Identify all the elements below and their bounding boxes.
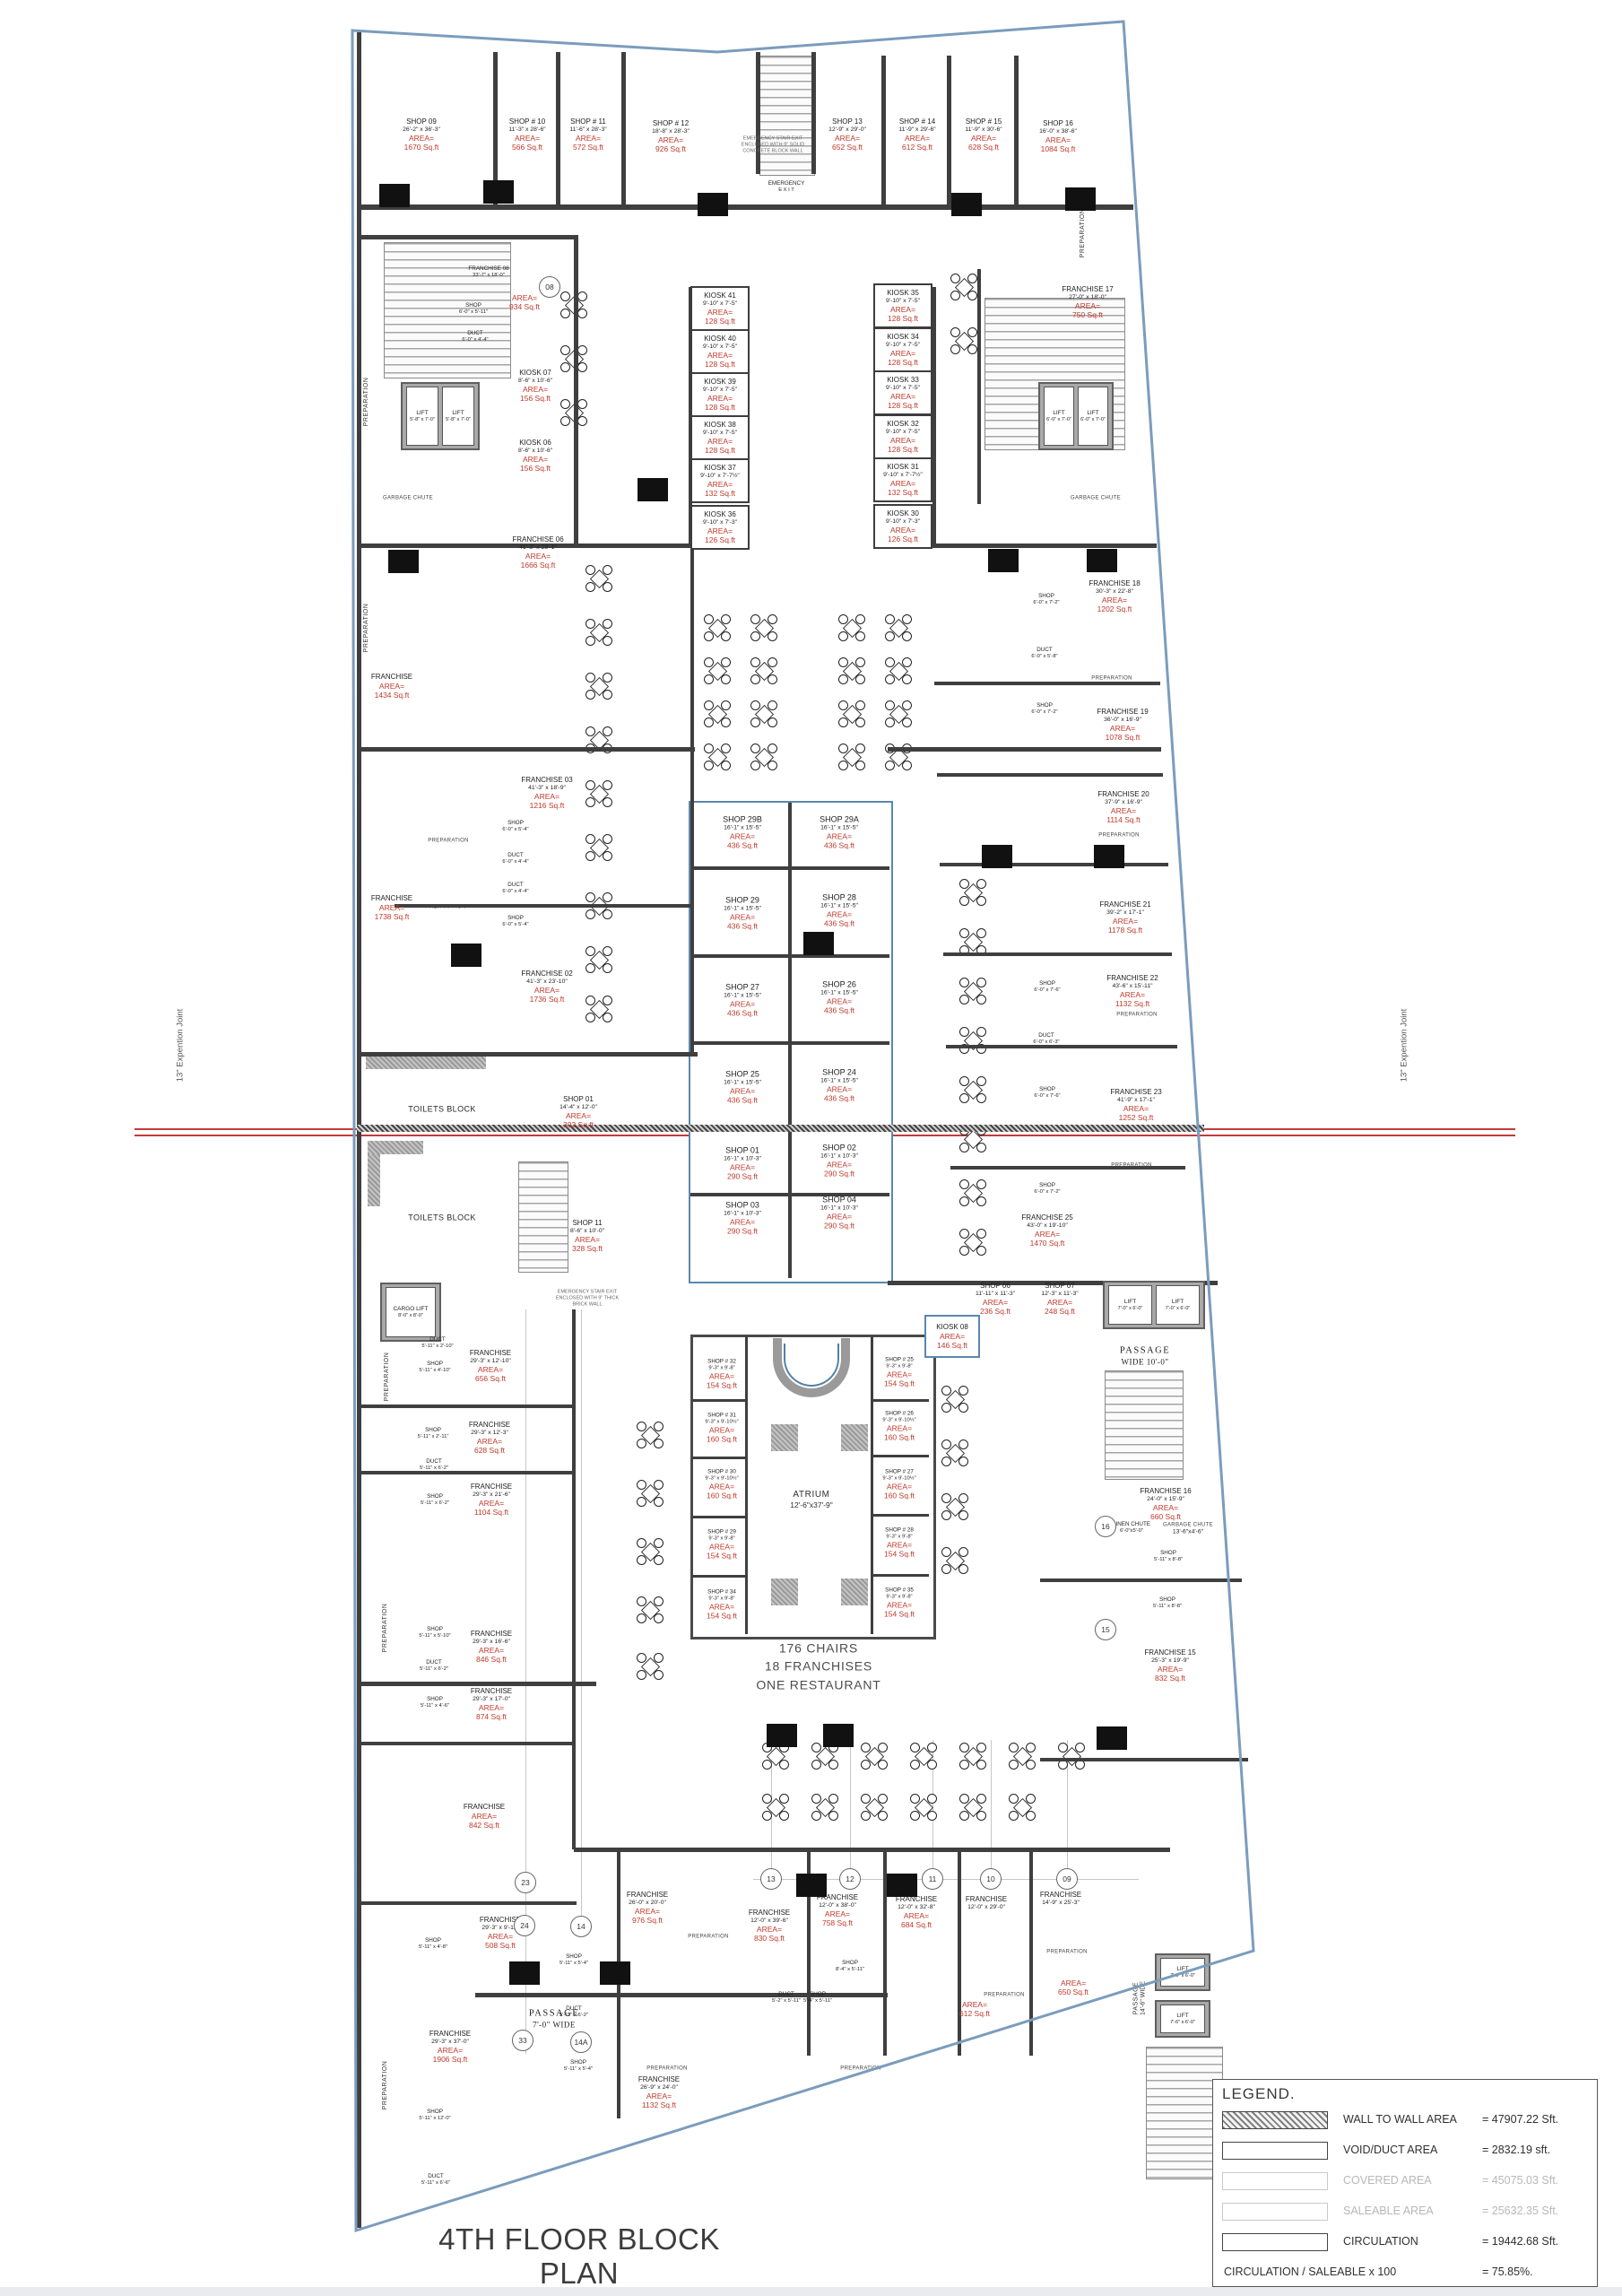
room-name: SHOP 11	[572, 1219, 602, 1228]
room-name: PREPARATION	[363, 378, 370, 427]
table-cluster-icon	[637, 1653, 664, 1680]
lift-cell: LIFT5'-8" x 7'-0"	[442, 387, 474, 446]
room-name: SHOP 28	[822, 892, 856, 902]
room-area: AREA=	[827, 1160, 852, 1169]
room-name: SHOP # 31	[707, 1413, 736, 1420]
room-dims: 16'-1" x 15'-5"	[724, 1079, 761, 1086]
room-area: 436 Sq.ft	[727, 840, 758, 849]
room-label: SHOP # 1411'-9" x 29'-6"AREA=612 Sq.ft	[898, 117, 935, 152]
room-dims: 5'-11" x 4'-6"	[421, 1702, 449, 1709]
room-name: DUCT	[426, 1659, 442, 1666]
room-area: AREA=	[479, 1703, 504, 1712]
room-label: SHOP # 279'-3" x 9'-10½"AREA=160 Sq.ft	[882, 1469, 915, 1500]
room-name: SHOP	[427, 2109, 443, 2116]
room-area: 1906 Sq.ft	[433, 2055, 468, 2064]
room-dims: 9'-3" x 9'-8"	[708, 1535, 734, 1542]
room-dims: 9'-3" x 9'-8"	[886, 1363, 912, 1370]
room-area: AREA=	[409, 134, 434, 143]
room-area: AREA=	[835, 134, 860, 143]
table-cluster-icon	[637, 1422, 664, 1448]
room-area: AREA=	[1045, 135, 1071, 144]
wall	[621, 52, 626, 206]
room-name: DUCT	[566, 2005, 582, 2013]
room-area: 934 Sq.ft	[509, 302, 540, 311]
room-label: DUCT5'-11" x 6'-2"	[559, 2005, 588, 2019]
room-label: SHOP5'-4" x 5'-11"	[803, 1991, 832, 2005]
room-label: DUCT6'-0" x 4'-4"	[502, 882, 528, 895]
room-label: DUCT5'-11" x 6'-2"	[420, 1659, 448, 1673]
legend-label: CIRCULATION / SALEABLE x 100	[1224, 2266, 1396, 2278]
wall	[572, 1309, 576, 1849]
room-name: FRANCHISE	[638, 2075, 680, 2084]
room-area: 128 Sq.ft	[705, 360, 735, 369]
room-area: AREA=	[576, 134, 601, 143]
room-name: SHOP	[425, 1427, 441, 1434]
room-area: AREA=	[887, 1370, 912, 1378]
lift-core: LIFT7'-6" x 6'-0"	[1155, 2000, 1210, 2038]
room-label: FRANCHISE29'-3" x 17'-0"AREA=874 Sq.ft	[471, 1687, 512, 1721]
room-label: SHOP6'-0" x 7'-2"	[1031, 702, 1057, 716]
room-dims: 5'-11" x 6'-2"	[421, 1500, 449, 1506]
room-label: FRANCHISE29'-3" x 21'-6"AREA=1104 Sq.ft	[471, 1483, 512, 1517]
room-label: FRANCHISE 2139'-2" x 17'-1"AREA=1178 Sq.…	[1099, 900, 1150, 935]
room-label: SHOP6'-0" x 5'-4"	[502, 915, 528, 928]
room-dims: 5'-11" x 6'-6"	[421, 2179, 450, 2186]
room-area: 750 Sq.ft	[1072, 310, 1103, 319]
room-area: 926 Sq.ft	[655, 144, 686, 153]
room-dims: 27'-0" x 18'-0"	[1069, 294, 1106, 301]
room-area: AREA=	[707, 437, 733, 446]
lift-core: LIFT6'-0" x 7'-0"LIFT6'-0" x 7'-0"	[1038, 382, 1114, 450]
room-name: FRANCHISE 06	[512, 535, 563, 544]
room-dims: 5'-11" x 5'-4"	[559, 1960, 588, 1966]
room-dims: 9'-3" x 9'-10½"	[882, 1417, 915, 1423]
room-name: KIOSK 38	[704, 421, 736, 430]
table-cluster-icon	[585, 834, 612, 861]
room-label: SHOP5'-11" x 2'-11"	[418, 1427, 449, 1440]
room-area: 132 Sq.ft	[888, 488, 918, 497]
room-area: 128 Sq.ft	[705, 403, 735, 412]
table-cluster-icon	[959, 928, 986, 955]
room-area: 652 Sq.ft	[832, 143, 863, 152]
wall	[357, 1471, 574, 1474]
room-area: 1216 Sq.ft	[530, 801, 565, 810]
room-dims: 41'-9" x 17'-1"	[1117, 1097, 1155, 1104]
floor-plan: 13" Expention Joint 13" Expention Joint …	[0, 0, 1622, 2296]
room-label: FRANCHISE14'-9" x 25'-3"	[1040, 1891, 1081, 1907]
room-label: DUCT6'-0" x 6'-3"	[1033, 1032, 1059, 1046]
room-name: SHOP	[842, 1960, 858, 1967]
grid-bubble: 14	[570, 1916, 592, 1937]
room-label: SHOP6'-0" x 7'-2"	[1033, 593, 1059, 606]
room-area: 874 Sq.ft	[476, 1712, 507, 1721]
room-name: GARBAGE CHUTE	[1071, 495, 1121, 501]
room-label: PREPARATION	[1091, 675, 1132, 682]
room-area: AREA=	[512, 293, 537, 302]
room-area: AREA=	[523, 385, 548, 394]
room-name: PASSAGE	[1133, 1982, 1141, 2014]
room-name: DUCT	[1038, 1032, 1054, 1039]
table-cluster-icon	[704, 744, 731, 770]
legend-row: COVERED AREA= 45075.03 Sft.	[1213, 2171, 1597, 2193]
room-label: DUCT5'-2" x 5'-11"	[772, 1991, 801, 2005]
legend-row: VOID/DUCT AREA= 2832.19 sft.	[1213, 2141, 1597, 2162]
room-name: SHOP	[1038, 593, 1054, 600]
room-dims: 14'-4" x 12'-0"	[559, 1104, 597, 1111]
room-label: DUCT5'-11" x 2'-10"	[421, 1336, 453, 1350]
room-name: KIOSK 33	[887, 376, 919, 385]
lift-cell: LIFT7'-0" x 6'-0"	[1156, 1285, 1200, 1325]
room-dims: 16'-1" x 10'-3"	[820, 1152, 858, 1160]
room-label: FRANCHISE29'-3" x 37'-0"AREA=1906 Sq.ft	[429, 2030, 471, 2064]
room-area: AREA=	[1102, 596, 1127, 604]
structural-column	[951, 193, 982, 216]
room-area: 128 Sq.ft	[888, 358, 918, 367]
room-dims: 16'-1" x 15'-5"	[820, 989, 858, 996]
lift-cell: LIFT7'-6" x 6'-0"	[1160, 1958, 1205, 1987]
room-label: KIOSK 369'-10" x 7'-3"AREA=126 Sq.ft	[690, 505, 750, 550]
room-label: PREPARATION	[1098, 832, 1139, 839]
lift-cell: LIFT7'-6" x 6'-0"	[1160, 2005, 1205, 2033]
table-cluster-icon	[959, 1743, 986, 1770]
table-cluster-icon	[941, 1493, 968, 1520]
room-name: SHOP	[1159, 1596, 1175, 1604]
table-cluster-icon	[959, 1229, 986, 1256]
room-name: SHOP 01	[563, 1095, 594, 1104]
room-dims: 6'-0" x 4'-4"	[502, 858, 528, 865]
room-name: TOILETS BLOCK	[408, 1105, 476, 1115]
room-name: DUCT	[1037, 647, 1053, 654]
table-cluster-icon	[838, 614, 865, 641]
room-label: AREA=650 Sq.ft	[1058, 1979, 1089, 1996]
page-edge-strip	[0, 2287, 1622, 2296]
room-area: AREA=	[379, 903, 404, 912]
room-label: FRANCHISE12'-0" x 32'-8"AREA=684 Sq.ft	[896, 1895, 937, 1929]
room-label: PREPARATION	[382, 2061, 389, 2110]
room-area: 1470 Sq.ft	[1030, 1239, 1065, 1248]
expansion-joint-label-right: 13" Expention Joint	[1399, 1009, 1409, 1083]
room-name: ATRIUM	[793, 1490, 829, 1500]
room-dims: 9'-10" x 7'-5"	[886, 298, 920, 305]
room-label: AREA=934 Sq.ft	[509, 293, 540, 311]
room-dims: 11'-9" x 30'-6"	[965, 126, 1002, 134]
room-area: 566 Sq.ft	[512, 143, 542, 152]
wall	[692, 1575, 746, 1578]
room-dims: 11'-9" x 29'-6"	[898, 126, 935, 134]
room-dims: 5'-2" x 5'-11"	[772, 1997, 801, 2004]
wall	[745, 1336, 748, 1634]
room-name: GARBAGE CHUTE	[1163, 1522, 1213, 1528]
room-area: AREA=	[730, 1162, 755, 1171]
room-area: 1178 Sq.ft	[1108, 926, 1142, 935]
room-area: AREA=	[890, 392, 915, 401]
hatched-fixture	[366, 1056, 486, 1069]
wall	[788, 803, 792, 1278]
room-area: 436 Sq.ft	[727, 921, 758, 930]
room-name: DUCT	[507, 852, 524, 859]
room-label: FRANCHISEAREA=1434 Sq.ft	[371, 673, 412, 700]
wall	[940, 863, 1168, 866]
room-label: DUCT6'-0" x 4'-4"	[502, 852, 528, 865]
room-dims: 6'-0" x 7'-6"	[1034, 987, 1060, 993]
room-label: PREPARATION	[384, 1352, 391, 1402]
lift-core: CARGO LIFT8'-0" x 8'-0"	[380, 1283, 441, 1342]
room-dims: 9'-3" x 9'-10½"	[705, 1475, 738, 1482]
room-area: AREA=	[827, 909, 852, 918]
grid-bubble: 09	[1056, 1868, 1078, 1890]
room-area: AREA=	[887, 1600, 912, 1609]
room-label: SHOP 0611'-11" x 11'-3"AREA=236 Sq.ft	[976, 1282, 1015, 1316]
room-area: AREA=	[534, 986, 559, 995]
table-cluster-icon	[861, 1743, 888, 1770]
room-dims: 41'-3" x 23'-10"	[526, 978, 568, 986]
room-area: AREA=	[827, 831, 852, 840]
room-area: 1434 Sq.ft	[375, 691, 410, 700]
room-area: 1252 Sq.ft	[1119, 1113, 1154, 1122]
room-area: AREA=	[635, 1907, 660, 1916]
room-name: SHOP	[427, 1493, 443, 1500]
hatched-fixture	[771, 1578, 798, 1605]
room-dims: 9'-3" x 9'-8"	[708, 1596, 734, 1602]
room-area: 154 Sq.ft	[884, 1378, 915, 1387]
room-name: SHOP 04	[822, 1195, 856, 1205]
room-area: 154 Sq.ft	[707, 1380, 737, 1389]
room-label: FRANCHISE12'-0" x 38'-0"AREA=758 Sq.ft	[817, 1893, 858, 1927]
room-name: SHOP # 10	[509, 117, 545, 126]
room-dims: 16'-1" x 15'-5"	[724, 992, 761, 999]
room-name: PASSAGE	[1120, 1345, 1170, 1357]
room-area: AREA=	[887, 1482, 912, 1491]
room-area: 684 Sq.ft	[901, 1920, 932, 1929]
room-area: 290 Sq.ft	[824, 1169, 854, 1178]
room-area: AREA=	[730, 912, 755, 921]
room-dims: 8'-6" x 10'-6"	[518, 378, 552, 385]
legend-value: = 25632.35 Sft.	[1482, 2205, 1558, 2217]
room-name: PREPARATION	[840, 2066, 880, 2072]
room-area: AREA=	[940, 1332, 965, 1341]
room-dims: 6'-0" x 4'-4"	[462, 336, 488, 343]
room-dims: 39'-2" x 17'-1"	[1106, 909, 1144, 917]
room-name: LINEN CHUTE	[1113, 1521, 1150, 1528]
room-label: SHOP 2716'-1" x 15'-5"AREA=436 Sq.ft	[724, 982, 761, 1017]
room-dims: 8'-4" x 5'-11"	[836, 1966, 864, 1972]
room-area: 1132 Sq.ft	[642, 2100, 676, 2109]
room-dims: 26'-2" x 36'-3"	[403, 126, 440, 134]
room-name: FRANCHISE 03	[521, 776, 572, 785]
room-name: PREPARATION	[1098, 832, 1139, 839]
room-name: PREPARATION	[1046, 1949, 1087, 1955]
room-area: 128 Sq.ft	[705, 446, 735, 455]
room-dims: 5'-11" x 8'-8"	[1153, 1603, 1182, 1609]
wall	[871, 1336, 873, 1634]
room-name: SHOP # 14	[899, 117, 935, 126]
room-label: FRANCHISE29'-3" x 16'-6"AREA=846 Sq.ft	[471, 1630, 512, 1664]
room-area: 1666 Sq.ft	[521, 561, 556, 570]
room-area: 628 Sq.ft	[968, 143, 999, 152]
room-area: 128 Sq.ft	[888, 314, 918, 323]
room-label: FRANCHISE 1727'-0" x 18'-0"AREA=750 Sq.f…	[1062, 285, 1113, 319]
table-cluster-icon	[585, 565, 612, 592]
room-dims: 14'-6" WIDE	[1141, 1981, 1148, 2015]
wall	[888, 747, 1161, 752]
room-dims: 16'-1" x 10'-3"	[820, 1205, 858, 1212]
room-dims: 12'-3" x 11'-3"	[1041, 1291, 1078, 1298]
room-area: AREA=	[707, 526, 733, 535]
grid-line	[850, 1740, 851, 1879]
table-cluster-icon	[1009, 1743, 1036, 1770]
room-label: PREPARATION	[363, 378, 370, 427]
room-dims: 36'-0" x 16'-9"	[1104, 717, 1141, 724]
room-label: FRANCHISE 1936'-0" x 16'-9"AREA=1078 Sq.…	[1097, 708, 1148, 742]
room-name: FRANCHISE 22	[1106, 974, 1158, 983]
room-label: PREPARATION	[363, 604, 370, 653]
room-name: PREPARATION	[363, 604, 370, 653]
legend-heading: LEGEND.	[1222, 2085, 1296, 2103]
room-name: FRANCHISE 19	[1097, 708, 1148, 717]
room-label: SHOP # 319'-3" x 9'-10½"AREA=160 Sq.ft	[705, 1413, 738, 1444]
wall	[932, 287, 936, 547]
room-dims: 16'-1" x 15'-5"	[820, 1077, 858, 1084]
room-label: GARBAGE CHUTE	[1071, 495, 1121, 501]
room-name: KIOSK 39	[704, 378, 736, 387]
room-dims: 6'-0" x 5'-4"	[502, 826, 528, 832]
room-dims: 7'-0" WIDE	[533, 2020, 576, 2030]
room-label: KIOSK 329'-10" x 7'-5"AREA=128 Sq.ft	[873, 414, 932, 459]
wall	[357, 1052, 698, 1057]
table-cluster-icon	[959, 1179, 986, 1206]
room-name: FRANCHISE	[469, 1421, 510, 1430]
room-dims: 6'-0" x 6'-3"	[1033, 1039, 1059, 1045]
room-name: SHOP # 12	[653, 119, 689, 128]
hatched-fixture	[368, 1141, 423, 1154]
grid-bubble: 15	[1095, 1619, 1116, 1640]
structural-column	[982, 845, 1012, 868]
room-area: 156 Sq.ft	[520, 394, 551, 403]
room-name: SHOP	[1039, 980, 1055, 987]
room-label: KIOSK 419'-10" x 7'-5"AREA=128 Sq.ft	[690, 286, 750, 331]
room-area: 1132 Sq.ft	[1115, 999, 1149, 1008]
room-label: KIOSK 309'-10" x 7'-3"AREA=126 Sq.ft	[873, 504, 932, 549]
table-cluster-icon	[838, 744, 865, 770]
room-dims: 29'-3" x 37'-0"	[431, 2039, 469, 2046]
room-name: SHOP	[566, 1953, 582, 1961]
room-dims: 11'-11" x 11'-3"	[976, 1291, 1015, 1298]
room-area: 1736 Sq.ft	[530, 995, 565, 1004]
room-name: SHOP # 32	[707, 1359, 736, 1366]
room-label: SHOP 2916'-1" x 15'-5"AREA=436 Sq.ft	[724, 895, 761, 930]
room-label: SHOP # 289'-3" x 9'-8"AREA=154 Sq.ft	[884, 1527, 915, 1559]
room-dims: 9'-3" x 9'-8"	[886, 1594, 912, 1600]
room-area: AREA=	[707, 480, 733, 489]
room-label: SHOP # 299'-3" x 9'-8"AREA=154 Sq.ft	[707, 1529, 737, 1561]
room-label: KIOSK 068'-6" x 10'-6"AREA=156 Sq.ft	[518, 439, 552, 473]
room-area: 436 Sq.ft	[727, 1095, 758, 1104]
room-label: FRANCHISE26'-9" x 24'-0"AREA=1132 Sq.ft	[638, 2075, 680, 2109]
legend-value: = 45075.03 Sft.	[1482, 2174, 1558, 2187]
room-label: SHOP # 349'-3" x 9'-8"AREA=154 Sq.ft	[707, 1589, 737, 1621]
table-cluster-icon	[585, 619, 612, 646]
room-area: AREA=	[904, 1911, 929, 1920]
room-dims: 9'-3" x 9'-10½"	[882, 1475, 915, 1482]
room-area: AREA=	[575, 1235, 600, 1244]
room-label: FRANCHISE 0241'-3" x 23'-10"AREA=1736 Sq…	[521, 970, 572, 1004]
structural-column	[1097, 1726, 1127, 1750]
wall	[943, 952, 1172, 956]
room-label: SHOP 29A16'-1" x 15'-5"AREA=436 Sq.ft	[820, 814, 859, 849]
room-name: SHOP	[1160, 1550, 1176, 1557]
room-area: 128 Sq.ft	[705, 317, 735, 326]
room-label: EMERGENCYE X I T	[768, 180, 805, 194]
wall	[946, 1045, 1177, 1048]
room-name: SHOP	[1037, 702, 1053, 709]
room-label: KIOSK 08AREA=146 Sq.ft	[924, 1315, 980, 1358]
legend-value: = 19442.68 Sft.	[1482, 2235, 1558, 2248]
room-name: KIOSK 34	[887, 333, 919, 342]
room-dims: 29'-3" x 17'-0"	[473, 1696, 510, 1703]
room-label: ATRIUM12'-6"x37'-9"	[790, 1490, 833, 1509]
room-area: 842 Sq.ft	[469, 1821, 499, 1830]
room-area: 612 Sq.ft	[959, 2009, 990, 2018]
wall	[881, 56, 886, 206]
room-label: SHOP 0712'-3" x 11'-3"AREA=248 Sq.ft	[1041, 1282, 1078, 1316]
table-cluster-icon	[950, 327, 977, 354]
room-name: EMERGENCY STAIR EXIT ENCLOSED WITH 9" TH…	[552, 1290, 622, 1309]
room-area: AREA=	[1153, 1503, 1178, 1512]
room-area: AREA=	[379, 682, 404, 691]
room-name: SHOP # 29	[707, 1529, 736, 1536]
grid-bubble: 10	[980, 1868, 1002, 1890]
room-name: SHOP # 27	[885, 1469, 914, 1476]
room-area: 302 Sq.ft	[563, 1120, 594, 1129]
room-name: FRANCHISE	[471, 1630, 512, 1639]
table-cluster-icon	[585, 996, 612, 1022]
room-area: 1738 Sq.ft	[375, 912, 410, 921]
room-label: SHOP5'-11" x 5'-10"	[419, 1626, 450, 1639]
structural-column	[767, 1724, 797, 1747]
room-area: 146 Sq.ft	[937, 1341, 967, 1350]
expansion-joint-label-left: 13" Expention Joint	[175, 1009, 185, 1083]
room-area: 1104 Sq.ft	[474, 1508, 508, 1517]
room-dims: 41'-3" x 18'-9"	[528, 785, 566, 792]
structural-column	[823, 1724, 854, 1747]
room-area: AREA=	[827, 1212, 852, 1221]
room-area: AREA=	[1113, 917, 1138, 926]
page-title: 4TH FLOOR BLOCK PLAN	[424, 2222, 734, 2291]
room-name: SHOP 29A	[820, 814, 859, 824]
room-name: PREPARATION	[382, 1604, 389, 1653]
room-dims: 25'-3" x 19'-9"	[1151, 1657, 1189, 1665]
room-dims: 9'-10" x 7'-5"	[886, 342, 920, 349]
room-label: KIOSK 339'-10" x 7'-5"AREA=128 Sq.ft	[873, 370, 932, 415]
wall	[692, 1457, 746, 1459]
structural-column	[887, 1874, 917, 1897]
structural-column	[1065, 187, 1096, 211]
room-dims: 14'-9" x 25'-3"	[1042, 1900, 1080, 1907]
legend-swatch	[1222, 2172, 1328, 2190]
legend-swatch	[1222, 2111, 1328, 2129]
table-cluster-icon	[750, 700, 777, 727]
room-dims: 16'-1" x 15'-5"	[724, 905, 761, 912]
room-name: SHOP	[507, 915, 524, 922]
room-name: SHOP 26	[822, 979, 856, 989]
table-cluster-icon	[838, 700, 865, 727]
room-area: AREA=	[890, 349, 915, 358]
room-label: KIOSK 319'-10" x 7'-7½"AREA=132 Sq.ft	[873, 457, 932, 502]
table-cluster-icon	[585, 673, 612, 700]
room-label: GARBAGE CHUTE	[383, 495, 433, 501]
staircase	[1105, 1370, 1184, 1480]
room-label: DUCT6'-0" x 4'-4"	[462, 330, 488, 344]
